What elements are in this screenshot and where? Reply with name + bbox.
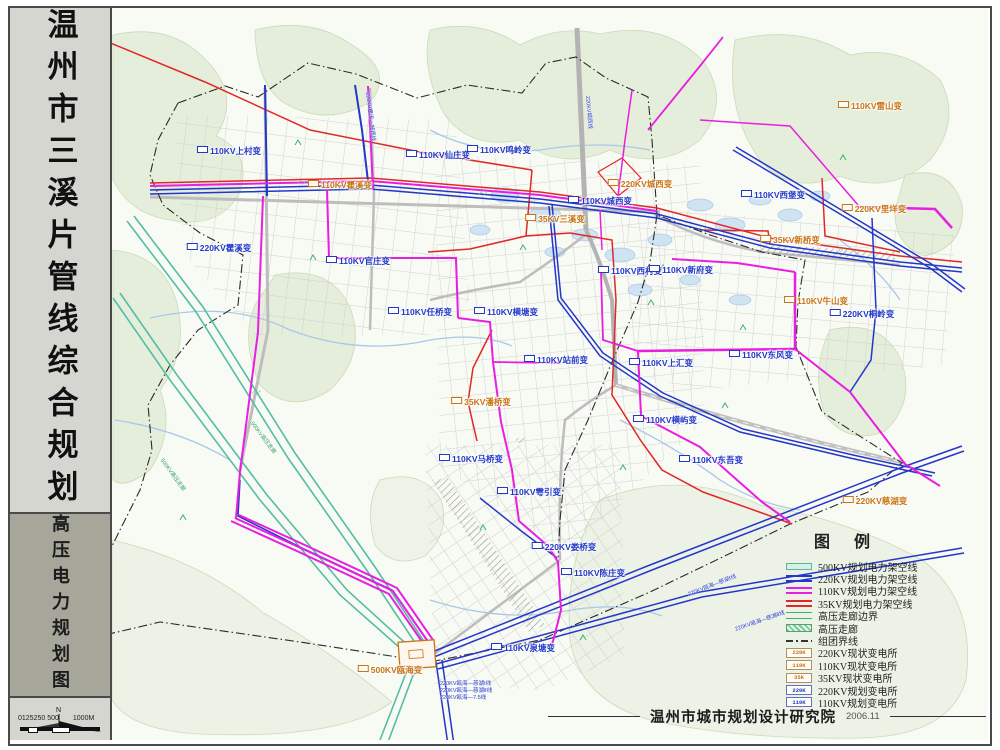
map-date: 2006.11 <box>846 711 880 722</box>
legend-swatch-35kv-existing-station: 35K <box>786 673 812 683</box>
legend-swatch-boundary <box>786 640 812 642</box>
legend-swatch-220kv-existing-station: 220K <box>786 648 812 658</box>
legend-swatch-corridor <box>786 624 812 632</box>
legend-swatch-220kv-line <box>786 575 812 582</box>
map-subtitle: 高压电力规划图 <box>47 514 73 696</box>
legend-swatch-110kv-existing-station: 110K <box>786 660 812 670</box>
legend-item: 高压走廊 <box>786 622 986 634</box>
scale-text: 0125250 5001000M <box>18 715 94 722</box>
credit-rule-right <box>890 716 986 717</box>
map-subtitle-panel: 高压电力规划图 <box>10 514 110 698</box>
north-arrow-icon: N <box>12 702 108 744</box>
institute-name: 温州市城市规划设计研究院 <box>650 706 836 727</box>
legend-swatch-110kv-line <box>786 587 812 594</box>
legend-item: 高压走廊边界 <box>786 610 986 622</box>
north-label: N <box>56 707 61 714</box>
map-title: 温州市三溪片管线综合规划 <box>38 8 83 512</box>
legend-item: 35KV规划电力架空线 <box>786 597 986 609</box>
substation-500kv-symbol <box>398 640 436 669</box>
map-title-panel: 温州市三溪片管线综合规划 <box>10 8 110 514</box>
credit-rule-left <box>548 716 640 717</box>
sidebar: 温州市三溪片管线综合规划 高压电力规划图 N 0125250 5001000M <box>10 8 112 740</box>
legend-swatch-220kv-planned-station: 220K <box>786 685 812 695</box>
legend-title: 图 例 <box>814 528 986 552</box>
planning-map-sheet: 110KV上村变110KV瞿溪变220KV瞿溪变110KV官庄变110KV仙庄变… <box>0 0 1000 750</box>
legend-swatch-500kv-line <box>786 563 812 570</box>
compass-panel: N 0125250 5001000M <box>10 698 110 740</box>
legend: 图 例 500KV规划电力架空线 220KV规划电力架空线 110KV规划电力架… <box>786 528 986 709</box>
legend-swatch-corridor-edge <box>786 612 812 619</box>
title-block: 温州市城市规划设计研究院 2006.11 <box>548 705 986 727</box>
scale-bar <box>20 727 102 731</box>
legend-swatch-35kv-line <box>786 600 812 607</box>
